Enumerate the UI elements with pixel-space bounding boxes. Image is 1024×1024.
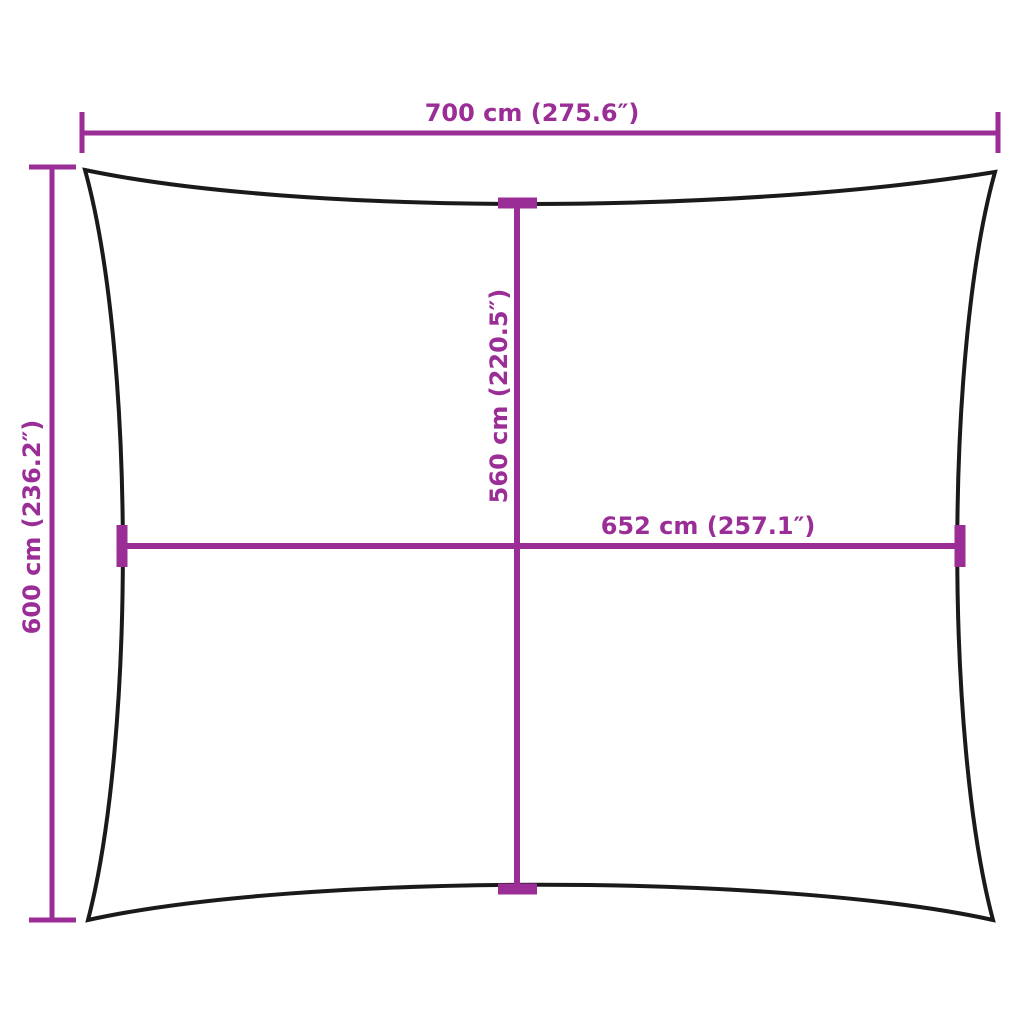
- width-dimension: 700 cm (275.6″): [82, 99, 998, 153]
- shade-sail-diagram: 700 cm (275.6″) 600 cm (236.2″) 560 cm (…: [0, 0, 1024, 1024]
- diagram-canvas: 700 cm (275.6″) 600 cm (236.2″) 560 cm (…: [0, 0, 1024, 1024]
- inner-width-dimension: 652 cm (257.1″): [122, 512, 960, 567]
- height-dimension-label: 600 cm (236.2″): [18, 420, 46, 635]
- inner-height-dimension-label: 560 cm (220.5″): [485, 289, 513, 504]
- width-dimension-label: 700 cm (275.6″): [425, 99, 640, 127]
- height-dimension: 600 cm (236.2″): [18, 167, 76, 920]
- inner-width-dimension-label: 652 cm (257.1″): [601, 512, 816, 540]
